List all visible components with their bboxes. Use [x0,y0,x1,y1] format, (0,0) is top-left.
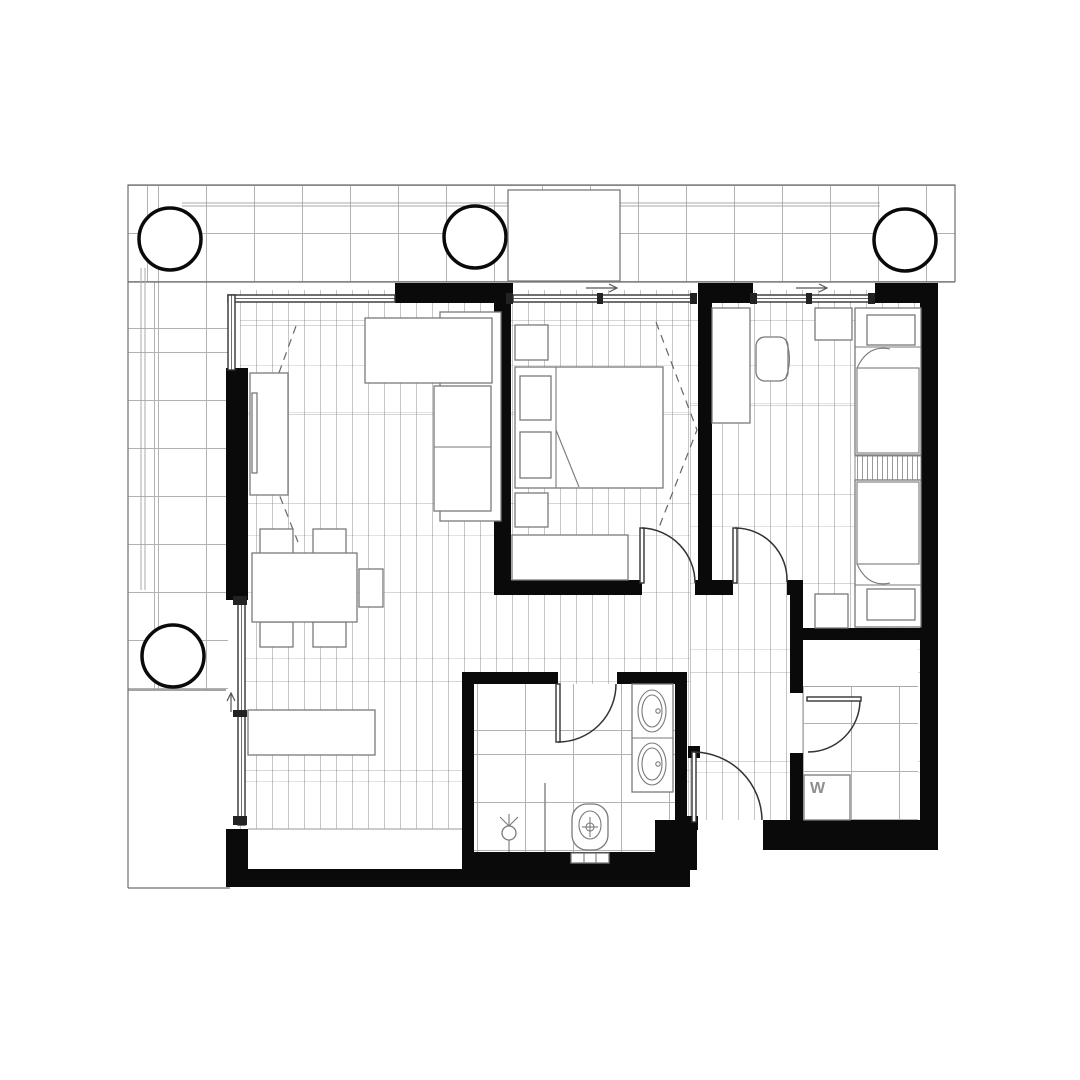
nightstand [815,594,848,628]
wall-segment [462,672,474,870]
wall-segment [803,628,923,640]
nightstand [515,493,548,527]
dining-chair [313,622,346,647]
wall-segment [763,820,938,850]
bedroom1-door [640,528,695,583]
column-icon [139,208,201,270]
wall-segment [462,672,558,684]
toilet [571,804,609,863]
tv-screen [252,393,257,473]
laundry-fixtures: W [804,775,850,820]
desk-chair [756,337,788,381]
pillow [520,432,551,478]
dining-table [252,553,357,622]
desk [712,308,750,423]
column-icon [874,209,936,271]
dining-chair [260,622,293,647]
console-cabinet [365,318,492,383]
bathroom-fixtures [500,684,673,863]
wall-segment [790,582,803,693]
wall-segment [920,283,938,850]
column-icon [444,206,506,268]
slide-arrow-living-door [227,693,235,712]
plan-linework: W [0,0,1080,1080]
bathroom-door [556,684,616,742]
wall-segment [494,580,642,595]
bedroom2-door [733,528,787,583]
sofa-cushions [434,386,491,511]
pillow [867,589,915,620]
dining-chair [260,529,293,554]
column-icon [142,625,204,687]
wall-segment [675,672,687,852]
washer-label: W [810,780,826,797]
wall-segment [790,753,803,822]
pillow [867,315,915,345]
nightstand [515,325,548,360]
nightstand [815,308,852,340]
sideboard [248,710,375,755]
wall-segment [226,368,248,600]
balcony-planter-box [508,190,620,281]
wall-segment [698,283,712,583]
bedroom2-furniture [712,308,921,628]
laundry-door [807,697,861,752]
slide-arrow-bedroom1-window [586,284,617,292]
pillow [520,376,551,420]
floor-plan-canvas: W [0,0,1080,1080]
dining-chair [313,529,346,554]
between-beds-unit [855,456,921,480]
shower-head-symbol [500,814,518,852]
dining-chair [359,569,383,607]
bench-dresser [512,535,628,580]
slide-arrow-bedroom2-window [796,284,827,292]
entry-door [692,752,762,822]
